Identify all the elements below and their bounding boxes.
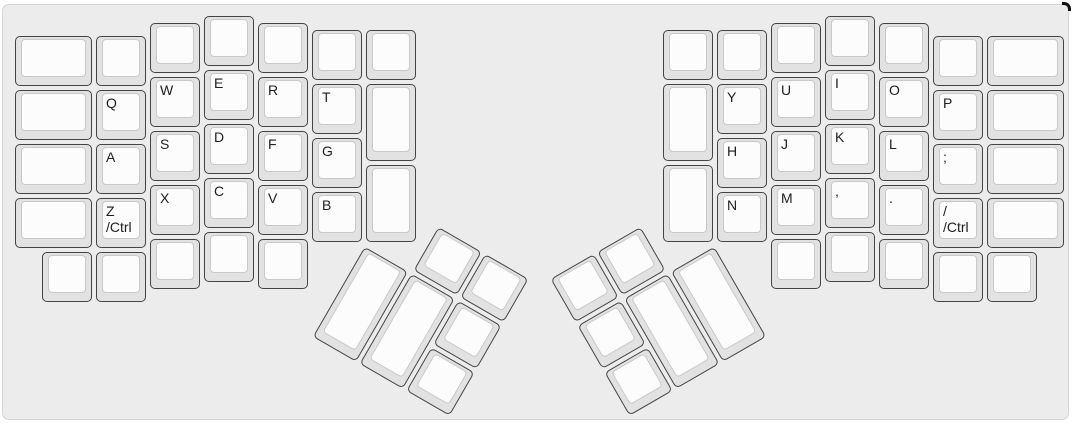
keycap-label: ; bbox=[943, 149, 947, 165]
keycap-label: . bbox=[889, 190, 893, 206]
keycap-top-surface: . bbox=[885, 188, 923, 226]
key-blank[interactable] bbox=[15, 36, 92, 86]
key-blank[interactable] bbox=[204, 232, 254, 282]
keycap-label: W bbox=[160, 82, 173, 98]
key-period[interactable]: . bbox=[879, 185, 929, 235]
keycap-label: T bbox=[322, 89, 331, 105]
keycap-top-surface bbox=[102, 39, 140, 77]
key-h[interactable]: H bbox=[717, 138, 767, 188]
keycap-top-surface bbox=[885, 26, 923, 64]
key-blank[interactable] bbox=[150, 239, 200, 289]
keycap-top-surface: Y bbox=[723, 87, 761, 125]
corner-mark bbox=[1062, 2, 1071, 11]
keycap-label: I bbox=[835, 75, 839, 91]
key-v[interactable]: V bbox=[258, 185, 308, 235]
keycap-top-surface bbox=[939, 39, 977, 77]
keycap-top-surface bbox=[318, 33, 356, 71]
key-w[interactable]: W bbox=[150, 77, 200, 127]
keycap-top-surface: C bbox=[210, 181, 248, 219]
keycap-top-surface: H bbox=[723, 141, 761, 179]
keycap-label: M bbox=[781, 190, 793, 206]
keycap-top-surface bbox=[723, 33, 761, 71]
keycap-top-surface bbox=[102, 255, 140, 293]
keycap-top-surface bbox=[156, 242, 194, 280]
key-blank[interactable] bbox=[933, 252, 983, 302]
key-u[interactable]: U bbox=[771, 77, 821, 127]
key-s[interactable]: S bbox=[150, 131, 200, 181]
keycap-top-surface: ; bbox=[939, 147, 977, 185]
keycap-top-surface bbox=[993, 201, 1058, 239]
keycap-top-surface: E bbox=[210, 73, 248, 111]
key-j[interactable]: J bbox=[771, 131, 821, 181]
keycap-label: C bbox=[214, 183, 224, 199]
key-blank[interactable] bbox=[771, 239, 821, 289]
key-a[interactable]: A bbox=[96, 144, 146, 194]
keycap-top-surface bbox=[831, 19, 869, 57]
keyboard-board: QAZ /CtrlWSXEDCRFVTGBYHNUJMIK,OL.P;/ /Ct… bbox=[2, 4, 1069, 420]
keycap-label: S bbox=[160, 136, 169, 152]
key-blank[interactable] bbox=[987, 144, 1064, 194]
keycap-top-surface bbox=[584, 306, 636, 358]
keycap-top-surface bbox=[156, 26, 194, 64]
keycap-top-surface: N bbox=[723, 195, 761, 233]
key-z-ctrl[interactable]: Z /Ctrl bbox=[96, 198, 146, 248]
key-t[interactable]: T bbox=[312, 84, 362, 134]
keycap-top-surface bbox=[604, 232, 656, 284]
key-blank[interactable] bbox=[312, 30, 362, 80]
keycap-label: R bbox=[268, 82, 278, 98]
key-g[interactable]: G bbox=[312, 138, 362, 188]
key-k[interactable]: K bbox=[825, 124, 875, 174]
keycap-top-surface: I bbox=[831, 73, 869, 111]
keycap-label: V bbox=[268, 190, 277, 206]
keycap-top-surface: P bbox=[939, 93, 977, 131]
key-blank[interactable] bbox=[879, 239, 929, 289]
keycap-top-surface bbox=[48, 255, 86, 293]
keycap-top-surface bbox=[372, 87, 410, 152]
keycap-top-surface: X bbox=[156, 188, 194, 226]
key-y[interactable]: Y bbox=[717, 84, 767, 134]
keycap-top-surface bbox=[416, 353, 468, 405]
keycap-label: E bbox=[214, 75, 223, 91]
key-blank[interactable] bbox=[15, 90, 92, 140]
keycap-top-surface bbox=[669, 168, 707, 233]
keycap-top-surface bbox=[669, 87, 707, 152]
key-blank[interactable] bbox=[366, 30, 416, 80]
key-blank[interactable] bbox=[366, 165, 416, 242]
key-o[interactable]: O bbox=[879, 77, 929, 127]
keycap-top-surface: F bbox=[264, 134, 302, 172]
key-r[interactable]: R bbox=[258, 77, 308, 127]
keycap-top-surface bbox=[669, 33, 707, 71]
keycap-label: O bbox=[889, 82, 900, 98]
key-comma[interactable]: , bbox=[825, 178, 875, 228]
keycap-top-surface bbox=[993, 93, 1058, 131]
keycap-top-surface bbox=[443, 306, 495, 358]
keycap-top-surface: S bbox=[156, 134, 194, 172]
keycap-label: B bbox=[322, 197, 331, 213]
key-blank[interactable] bbox=[366, 84, 416, 161]
keycap-label: A bbox=[106, 149, 115, 165]
key-blank[interactable] bbox=[42, 252, 92, 302]
keycap-top-surface bbox=[423, 232, 475, 284]
keycap-top-surface: T bbox=[318, 87, 356, 125]
keycap-label: G bbox=[322, 143, 333, 159]
keycap-top-surface bbox=[885, 242, 923, 280]
keycap-label: H bbox=[727, 143, 737, 159]
keycap-top-surface bbox=[470, 259, 522, 311]
key-blank[interactable] bbox=[258, 239, 308, 289]
keycap-top-surface bbox=[372, 168, 410, 233]
keycap-label: P bbox=[943, 95, 952, 111]
keycap-label: D bbox=[214, 129, 224, 145]
key-blank[interactable] bbox=[717, 30, 767, 80]
key-semicolon[interactable]: ; bbox=[933, 144, 983, 194]
keycap-label: N bbox=[727, 197, 737, 213]
key-d[interactable]: D bbox=[204, 124, 254, 174]
key-x[interactable]: X bbox=[150, 185, 200, 235]
keycap-top-surface bbox=[264, 26, 302, 64]
keycap-label: L bbox=[889, 136, 897, 152]
keycap-top-surface bbox=[21, 39, 86, 77]
key-i[interactable]: I bbox=[825, 70, 875, 120]
keycap-top-surface: G bbox=[318, 141, 356, 179]
key-blank[interactable] bbox=[15, 144, 92, 194]
keycap-top-surface: B bbox=[318, 195, 356, 233]
key-blank[interactable] bbox=[771, 23, 821, 73]
keycap-top-surface: U bbox=[777, 80, 815, 118]
keycap-top-surface bbox=[831, 235, 869, 273]
key-blank[interactable] bbox=[825, 16, 875, 66]
key-l[interactable]: L bbox=[879, 131, 929, 181]
keycap-top-surface: Q bbox=[102, 93, 140, 131]
key-blank[interactable] bbox=[96, 36, 146, 86]
keycap-top-surface: , bbox=[831, 181, 869, 219]
keycap-top-surface bbox=[557, 259, 609, 311]
key-blank[interactable] bbox=[663, 84, 713, 161]
key-blank[interactable] bbox=[258, 23, 308, 73]
keycap-top-surface: R bbox=[264, 80, 302, 118]
key-blank[interactable] bbox=[150, 23, 200, 73]
key-c[interactable]: C bbox=[204, 178, 254, 228]
keycap-label: F bbox=[268, 136, 277, 152]
keycap-top-surface bbox=[372, 33, 410, 71]
keycap-top-surface bbox=[21, 201, 86, 239]
keycap-top-surface bbox=[264, 242, 302, 280]
keycap-top-surface bbox=[611, 353, 663, 405]
keycap-top-surface: W bbox=[156, 80, 194, 118]
keyboard-layout-stage: QAZ /CtrlWSXEDCRFVTGBYHNUJMIK,OL.P;/ /Ct… bbox=[0, 0, 1073, 424]
key-n[interactable]: N bbox=[717, 192, 767, 242]
keycap-top-surface: J bbox=[777, 134, 815, 172]
key-blank[interactable] bbox=[879, 23, 929, 73]
keycap-top-surface bbox=[21, 147, 86, 185]
keycap-label: , bbox=[835, 183, 839, 199]
keycap-top-surface bbox=[777, 26, 815, 64]
keycap-top-surface: O bbox=[885, 80, 923, 118]
keycap-top-surface bbox=[777, 242, 815, 280]
key-blank[interactable] bbox=[663, 165, 713, 242]
key-p[interactable]: P bbox=[933, 90, 983, 140]
key-e[interactable]: E bbox=[204, 70, 254, 120]
key-blank[interactable] bbox=[933, 36, 983, 86]
keycap-label: Z /Ctrl bbox=[106, 203, 132, 235]
key-blank[interactable] bbox=[987, 252, 1037, 302]
keycap-top-surface: K bbox=[831, 127, 869, 165]
key-blank[interactable] bbox=[15, 198, 92, 248]
key-blank[interactable] bbox=[663, 30, 713, 80]
keycap-top-surface bbox=[210, 235, 248, 273]
key-f[interactable]: F bbox=[258, 131, 308, 181]
key-blank[interactable] bbox=[96, 252, 146, 302]
keycap-top-surface bbox=[993, 147, 1058, 185]
key-blank[interactable] bbox=[987, 90, 1064, 140]
keycap-top-surface bbox=[210, 19, 248, 57]
keycap-label: Q bbox=[106, 95, 117, 111]
keycap-top-surface: M bbox=[777, 188, 815, 226]
key-blank[interactable] bbox=[825, 232, 875, 282]
key-blank[interactable] bbox=[204, 16, 254, 66]
keycap-top-surface bbox=[993, 39, 1058, 77]
keycap-label: / /Ctrl bbox=[943, 203, 969, 235]
keycap-label: U bbox=[781, 82, 791, 98]
keycap-top-surface bbox=[993, 255, 1031, 293]
keycap-label: Y bbox=[727, 89, 736, 105]
keycap-top-surface: V bbox=[264, 188, 302, 226]
key-blank[interactable] bbox=[987, 198, 1064, 248]
keycap-top-surface: L bbox=[885, 134, 923, 172]
keycap-top-surface: A bbox=[102, 147, 140, 185]
keycap-top-surface: D bbox=[210, 127, 248, 165]
keycap-top-surface: Z /Ctrl bbox=[102, 201, 140, 239]
key-slash-ctrl[interactable]: / /Ctrl bbox=[933, 198, 983, 248]
keycap-top-surface: / /Ctrl bbox=[939, 201, 977, 239]
key-b[interactable]: B bbox=[312, 192, 362, 242]
keycap-top-surface bbox=[939, 255, 977, 293]
key-blank[interactable] bbox=[987, 36, 1064, 86]
keycap-label: K bbox=[835, 129, 844, 145]
keycap-top-surface bbox=[21, 93, 86, 131]
keycap-label: J bbox=[781, 136, 788, 152]
key-q[interactable]: Q bbox=[96, 90, 146, 140]
keycap-label: X bbox=[160, 190, 169, 206]
key-m[interactable]: M bbox=[771, 185, 821, 235]
